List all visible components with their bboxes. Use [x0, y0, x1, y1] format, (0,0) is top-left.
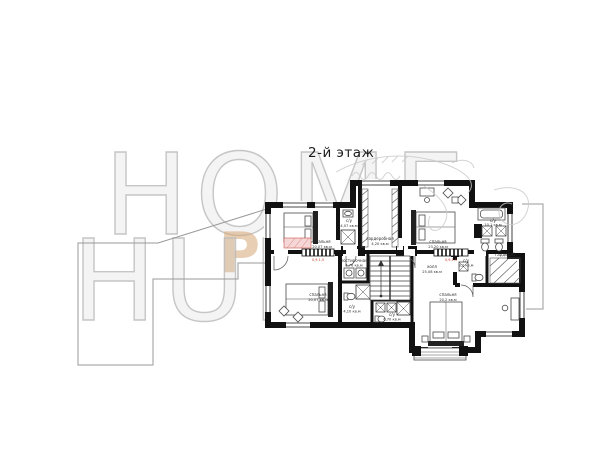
balcony	[412, 346, 468, 360]
rug-marking	[284, 238, 311, 248]
room-area: 20,07 кв.м	[312, 245, 332, 249]
dimension-mark: 0,9-1,5	[312, 258, 324, 262]
room-label: спальня	[313, 239, 331, 244]
floorplan-drawing: 0,9-1,5 0,9-1,5	[0, 0, 616, 455]
room-label: холл	[427, 264, 437, 269]
room-label: с/у	[349, 304, 356, 309]
room-area: 4,76 кв.м	[345, 264, 363, 268]
room-area: 4,10 кв.м	[343, 310, 361, 314]
room-label: гардеробная	[366, 236, 394, 241]
room-area: 25,08 кв.м	[422, 270, 442, 274]
room-area: 20,07 кв.м	[308, 298, 328, 302]
room-label: спальня	[309, 292, 327, 297]
dimension-mark: 0,9-1,5	[445, 258, 457, 262]
room-label: гардероб	[495, 252, 515, 257]
room-area: 10,1 кв.м	[484, 223, 502, 227]
room-area: 6,70 кв.м	[383, 318, 401, 322]
floorplan-page: HOME PLANS HUNT 2-й этаж	[0, 0, 616, 455]
room-area: 4,20 кв.м	[371, 242, 389, 246]
page-title: 2-й этаж	[308, 145, 374, 161]
room-area: 4,07 кв.м	[340, 224, 358, 228]
room-label: с/у	[389, 312, 396, 317]
room-label: спальня	[439, 292, 457, 297]
room-area: 20,2 кв.м	[439, 298, 457, 302]
room-label: постирочная	[340, 258, 368, 263]
staircase	[370, 256, 410, 300]
room-area: 23,20 кв.м	[428, 245, 448, 249]
room-label: с/у	[346, 218, 353, 223]
room-area: 3,2 кв.м	[459, 264, 474, 268]
room-label: спальня	[429, 239, 447, 244]
room-label: с/у	[463, 258, 470, 263]
